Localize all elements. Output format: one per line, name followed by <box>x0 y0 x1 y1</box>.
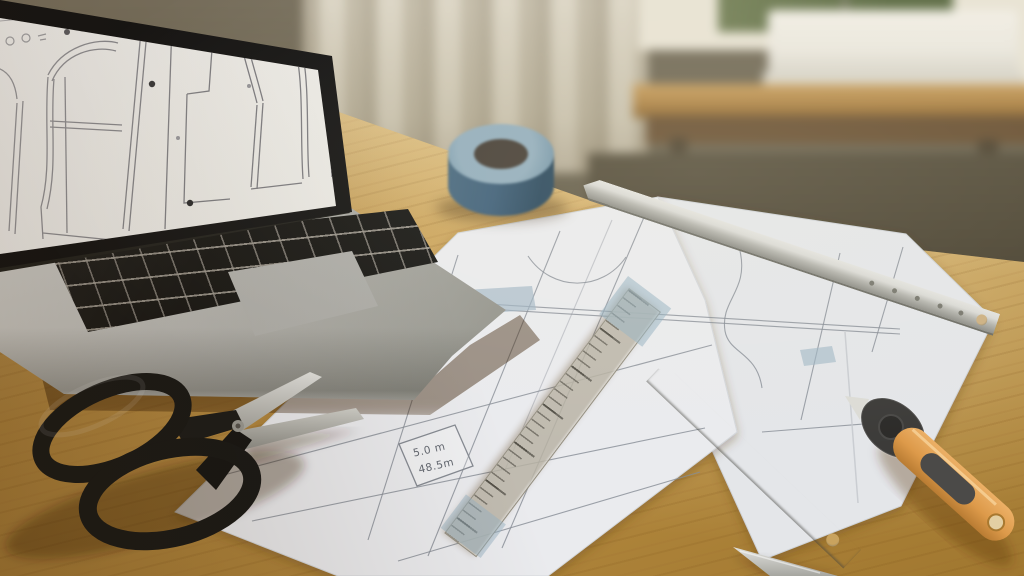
hand-tools-layer <box>0 0 1024 576</box>
spare-blade <box>733 547 840 576</box>
photo-sewing-workspace: 5.0 m 48.5m <box>0 0 1024 576</box>
rotary-cutter <box>845 386 1024 576</box>
blue-tape-roll <box>448 124 554 218</box>
scissors-handle-highlight <box>34 365 151 446</box>
tape-roll-core <box>474 139 528 169</box>
scissors <box>0 362 364 576</box>
scissors-pivot-screw-center <box>236 424 241 429</box>
